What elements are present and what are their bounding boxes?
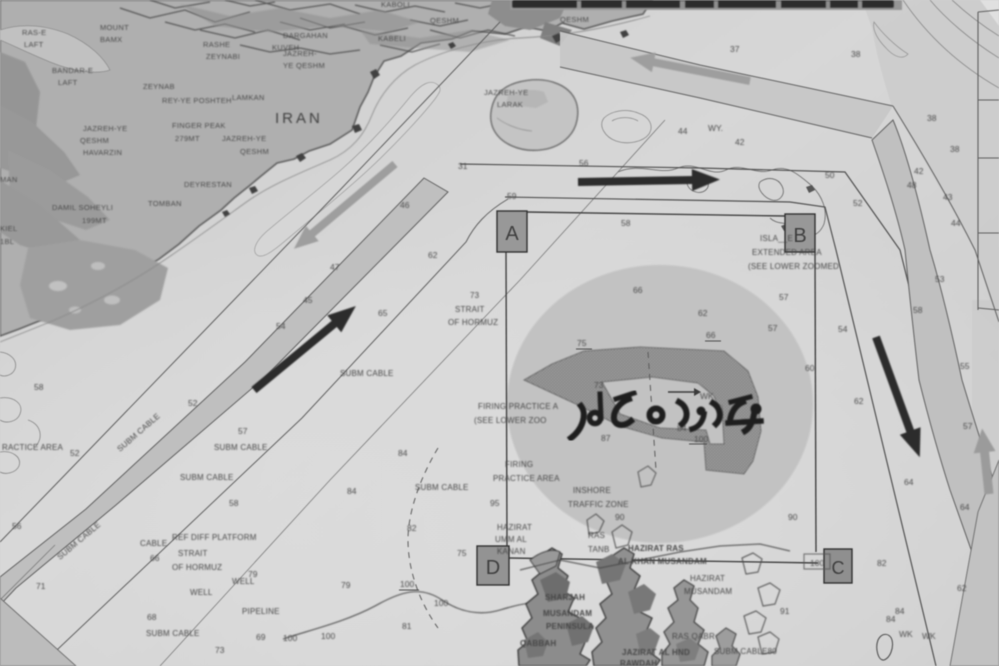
- svg-text:52: 52: [188, 398, 198, 408]
- svg-text:LAMKAN: LAMKAN: [232, 93, 265, 102]
- svg-text:JAZIRAT AL HND: JAZIRAT AL HND: [622, 648, 690, 657]
- svg-text:48: 48: [907, 180, 917, 190]
- svg-text:TOMBAN: TOMBAN: [148, 199, 182, 208]
- svg-text:43: 43: [943, 192, 953, 202]
- svg-text:79: 79: [248, 569, 258, 579]
- svg-text:HAZIRAT: HAZIRAT: [690, 574, 725, 583]
- svg-text:WK: WK: [899, 629, 913, 639]
- svg-text:82: 82: [407, 523, 417, 533]
- svg-text:RAS: RAS: [588, 531, 605, 540]
- svg-text:QESHM: QESHM: [560, 15, 589, 24]
- svg-text:62: 62: [957, 583, 967, 593]
- svg-text:HAZIRAT RAS: HAZIRAT RAS: [628, 544, 684, 553]
- svg-text:84: 84: [398, 448, 408, 458]
- svg-text:44: 44: [678, 126, 688, 136]
- svg-text:73: 73: [594, 380, 604, 390]
- svg-text:MOUNT: MOUNT: [100, 23, 129, 32]
- svg-text:79: 79: [341, 580, 351, 590]
- svg-text:58: 58: [621, 218, 631, 228]
- svg-text:71: 71: [36, 581, 46, 591]
- svg-text:38: 38: [950, 144, 960, 154]
- svg-text:66: 66: [633, 285, 643, 295]
- svg-text:REF DIFF: REF DIFF: [172, 533, 210, 542]
- svg-text:54: 54: [276, 321, 286, 331]
- svg-text:60: 60: [805, 363, 815, 373]
- svg-text:100: 100: [434, 598, 448, 608]
- svg-text:54: 54: [838, 324, 848, 334]
- svg-text:HAZIRAT: HAZIRAT: [497, 523, 532, 532]
- svg-text:66: 66: [150, 553, 160, 563]
- svg-text:100: 100: [694, 434, 708, 444]
- svg-text:UMM AL: UMM AL: [495, 535, 527, 544]
- svg-text:KABELI: KABELI: [378, 34, 406, 43]
- svg-text:57: 57: [768, 323, 778, 333]
- svg-text:38: 38: [927, 113, 937, 123]
- svg-text:56: 56: [579, 158, 589, 168]
- svg-text:82: 82: [877, 558, 887, 568]
- svg-text:KIEL: KIEL: [0, 224, 17, 233]
- svg-text:52: 52: [70, 448, 80, 458]
- svg-text:FIRING PRACTICE A: FIRING PRACTICE A: [478, 402, 559, 411]
- svg-text:STRAIT: STRAIT: [455, 305, 485, 314]
- svg-text:QESHM: QESHM: [430, 16, 459, 25]
- svg-text:58: 58: [913, 305, 923, 315]
- svg-text:57: 57: [963, 421, 973, 431]
- svg-text:QESHM: QESHM: [80, 136, 109, 145]
- svg-text:100: 100: [810, 558, 824, 568]
- svg-text:64: 64: [960, 502, 970, 512]
- svg-text:81: 81: [402, 621, 412, 631]
- svg-text:57: 57: [779, 292, 789, 302]
- svg-text:SUBM CABLE: SUBM CABLE: [146, 629, 200, 638]
- svg-text:MUSANDAM: MUSANDAM: [543, 609, 592, 618]
- svg-text:58: 58: [229, 498, 239, 508]
- svg-text:279MT: 279MT: [175, 134, 200, 143]
- svg-text:YE QESHM: YE QESHM: [283, 61, 325, 70]
- svg-text:68: 68: [147, 612, 157, 622]
- svg-text:PLATFORM: PLATFORM: [212, 533, 257, 542]
- svg-text:91: 91: [780, 606, 790, 616]
- svg-text:DAMIL SOHEYLI: DAMIL SOHEYLI: [52, 203, 113, 212]
- svg-text:47: 47: [330, 262, 340, 272]
- svg-text:SHARJAH: SHARJAH: [545, 593, 585, 602]
- svg-text:SUBM CABLE80: SUBM CABLE80: [714, 647, 777, 656]
- svg-text:90: 90: [615, 512, 625, 522]
- svg-text:62: 62: [428, 250, 438, 260]
- svg-text:D: D: [486, 557, 500, 579]
- svg-text:BANDAR-E: BANDAR-E: [52, 66, 93, 75]
- svg-text:57: 57: [238, 426, 248, 436]
- svg-text:84: 84: [895, 606, 905, 616]
- svg-text:LAFT: LAFT: [24, 40, 44, 49]
- svg-text:100: 100: [400, 579, 414, 589]
- svg-text:75: 75: [457, 548, 467, 558]
- svg-text:TRAFFIC ZONE: TRAFFIC ZONE: [568, 500, 629, 509]
- svg-text:64: 64: [904, 477, 914, 487]
- svg-text:QESHM: QESHM: [240, 147, 269, 156]
- svg-text:38: 38: [851, 49, 861, 59]
- svg-text:RACTICE AREA: RACTICE AREA: [2, 443, 64, 452]
- svg-text:31: 31: [458, 161, 468, 171]
- svg-text:HAVARZIN: HAVARZIN: [83, 148, 122, 157]
- svg-text:RASHE: RASHE: [203, 40, 230, 49]
- svg-text:73: 73: [470, 291, 480, 300]
- svg-text:(SEE LOWER ZOOMED: (SEE LOWER ZOOMED: [748, 262, 839, 271]
- svg-text:CABLE: CABLE: [140, 539, 167, 548]
- svg-text:SUBM CABLE: SUBM CABLE: [340, 369, 394, 378]
- svg-text:62: 62: [854, 396, 864, 406]
- svg-text:EXTENDED AREA: EXTENDED AREA: [752, 248, 822, 257]
- svg-text:ZEYNABI: ZEYNABI: [206, 52, 240, 61]
- svg-text:66: 66: [706, 330, 716, 340]
- svg-text:ZEYNAB: ZEYNAB: [143, 82, 175, 91]
- svg-text:SUBM CABLE: SUBM CABLE: [180, 473, 234, 482]
- svg-text:62: 62: [698, 308, 708, 318]
- svg-text:DEYRESTAN: DEYRESTAN: [184, 180, 232, 189]
- svg-text:SUBM CABLE: SUBM CABLE: [415, 483, 469, 492]
- svg-text:INSHORE: INSHORE: [573, 486, 611, 495]
- svg-text:TANB: TANB: [588, 545, 610, 554]
- svg-text:PRACTICE AREA: PRACTICE AREA: [493, 474, 560, 483]
- svg-text:90: 90: [788, 512, 798, 522]
- svg-text:RAS-E: RAS-E: [22, 28, 46, 37]
- svg-text:199MT: 199MT: [82, 216, 107, 225]
- svg-text:73: 73: [215, 645, 225, 655]
- svg-text:RAWDAH: RAWDAH: [620, 659, 657, 666]
- svg-text:42: 42: [735, 137, 745, 147]
- svg-text:DARGAHAN: DARGAHAN: [283, 31, 328, 40]
- svg-text:LAFT: LAFT: [58, 78, 78, 87]
- svg-text:100: 100: [283, 633, 297, 643]
- svg-text:STRAIT: STRAIT: [178, 549, 208, 558]
- svg-text:MAN: MAN: [0, 175, 18, 184]
- svg-text:JAZREH-YE: JAZREH-YE: [83, 124, 127, 133]
- svg-text:REY-YE POSHTEH: REY-YE POSHTEH: [162, 96, 232, 105]
- svg-text:KANAN: KANAN: [497, 547, 526, 556]
- svg-text:WELL: WELL: [190, 588, 213, 597]
- svg-text:95: 95: [490, 498, 500, 508]
- svg-text:OF HORMUZ: OF HORMUZ: [172, 563, 222, 572]
- svg-text:37: 37: [730, 44, 740, 54]
- svg-text:65: 65: [378, 308, 388, 318]
- svg-text:B: B: [793, 225, 806, 247]
- svg-text:59: 59: [507, 191, 517, 201]
- svg-text:46: 46: [400, 200, 410, 210]
- svg-text:FIRING: FIRING: [505, 460, 533, 469]
- svg-text:44: 44: [951, 218, 961, 228]
- svg-text:LARAK: LARAK: [497, 100, 523, 109]
- svg-text:100: 100: [321, 631, 335, 641]
- svg-text:JAZREH-: JAZREH-: [283, 49, 317, 58]
- svg-text:RAS QABR: RAS QABR: [672, 632, 715, 641]
- svg-text:69: 69: [256, 632, 266, 642]
- svg-text:42: 42: [914, 166, 924, 176]
- svg-text:58: 58: [34, 382, 44, 392]
- svg-text:52: 52: [853, 198, 863, 208]
- svg-text:AL KHAN MUSANDAM: AL KHAN MUSANDAM: [618, 557, 707, 566]
- svg-text:75: 75: [577, 338, 587, 348]
- svg-text:55: 55: [960, 361, 970, 371]
- svg-text:JAZREH-YE: JAZREH-YE: [222, 134, 266, 143]
- svg-text:PIPELINE: PIPELINE: [242, 607, 280, 616]
- svg-text:OF HORMUZ: OF HORMUZ: [448, 318, 498, 327]
- svg-text:SUBM CABLE: SUBM CABLE: [214, 443, 268, 452]
- svg-text:PENINSULA: PENINSULA: [546, 622, 594, 631]
- svg-text:56: 56: [12, 521, 22, 531]
- svg-text:IRAN: IRAN: [275, 110, 323, 127]
- svg-text:MUSANDAM: MUSANDAM: [684, 587, 732, 596]
- svg-text:(SEE LOWER ZOO: (SEE LOWER ZOO: [474, 416, 547, 425]
- svg-text:1BL: 1BL: [0, 237, 14, 246]
- svg-text:53: 53: [935, 274, 945, 284]
- svg-text:WY.: WY.: [708, 123, 723, 133]
- svg-text:45: 45: [303, 295, 313, 305]
- svg-text:JAZREH-YE: JAZREH-YE: [484, 88, 528, 97]
- svg-text:FINGER PEAK: FINGER PEAK: [172, 121, 226, 130]
- svg-text:87: 87: [601, 433, 611, 443]
- svg-text:KABOLI: KABOLI: [381, 0, 410, 9]
- svg-text:BAMX: BAMX: [100, 35, 122, 44]
- svg-text:ISLA__E: ISLA__E: [760, 234, 793, 243]
- svg-text:C: C: [832, 558, 845, 578]
- svg-text:WK: WK: [922, 631, 936, 641]
- svg-text:QABBAH: QABBAH: [520, 639, 556, 648]
- svg-text:84: 84: [347, 486, 357, 496]
- svg-text:50: 50: [825, 170, 835, 180]
- svg-text:A: A: [505, 223, 519, 245]
